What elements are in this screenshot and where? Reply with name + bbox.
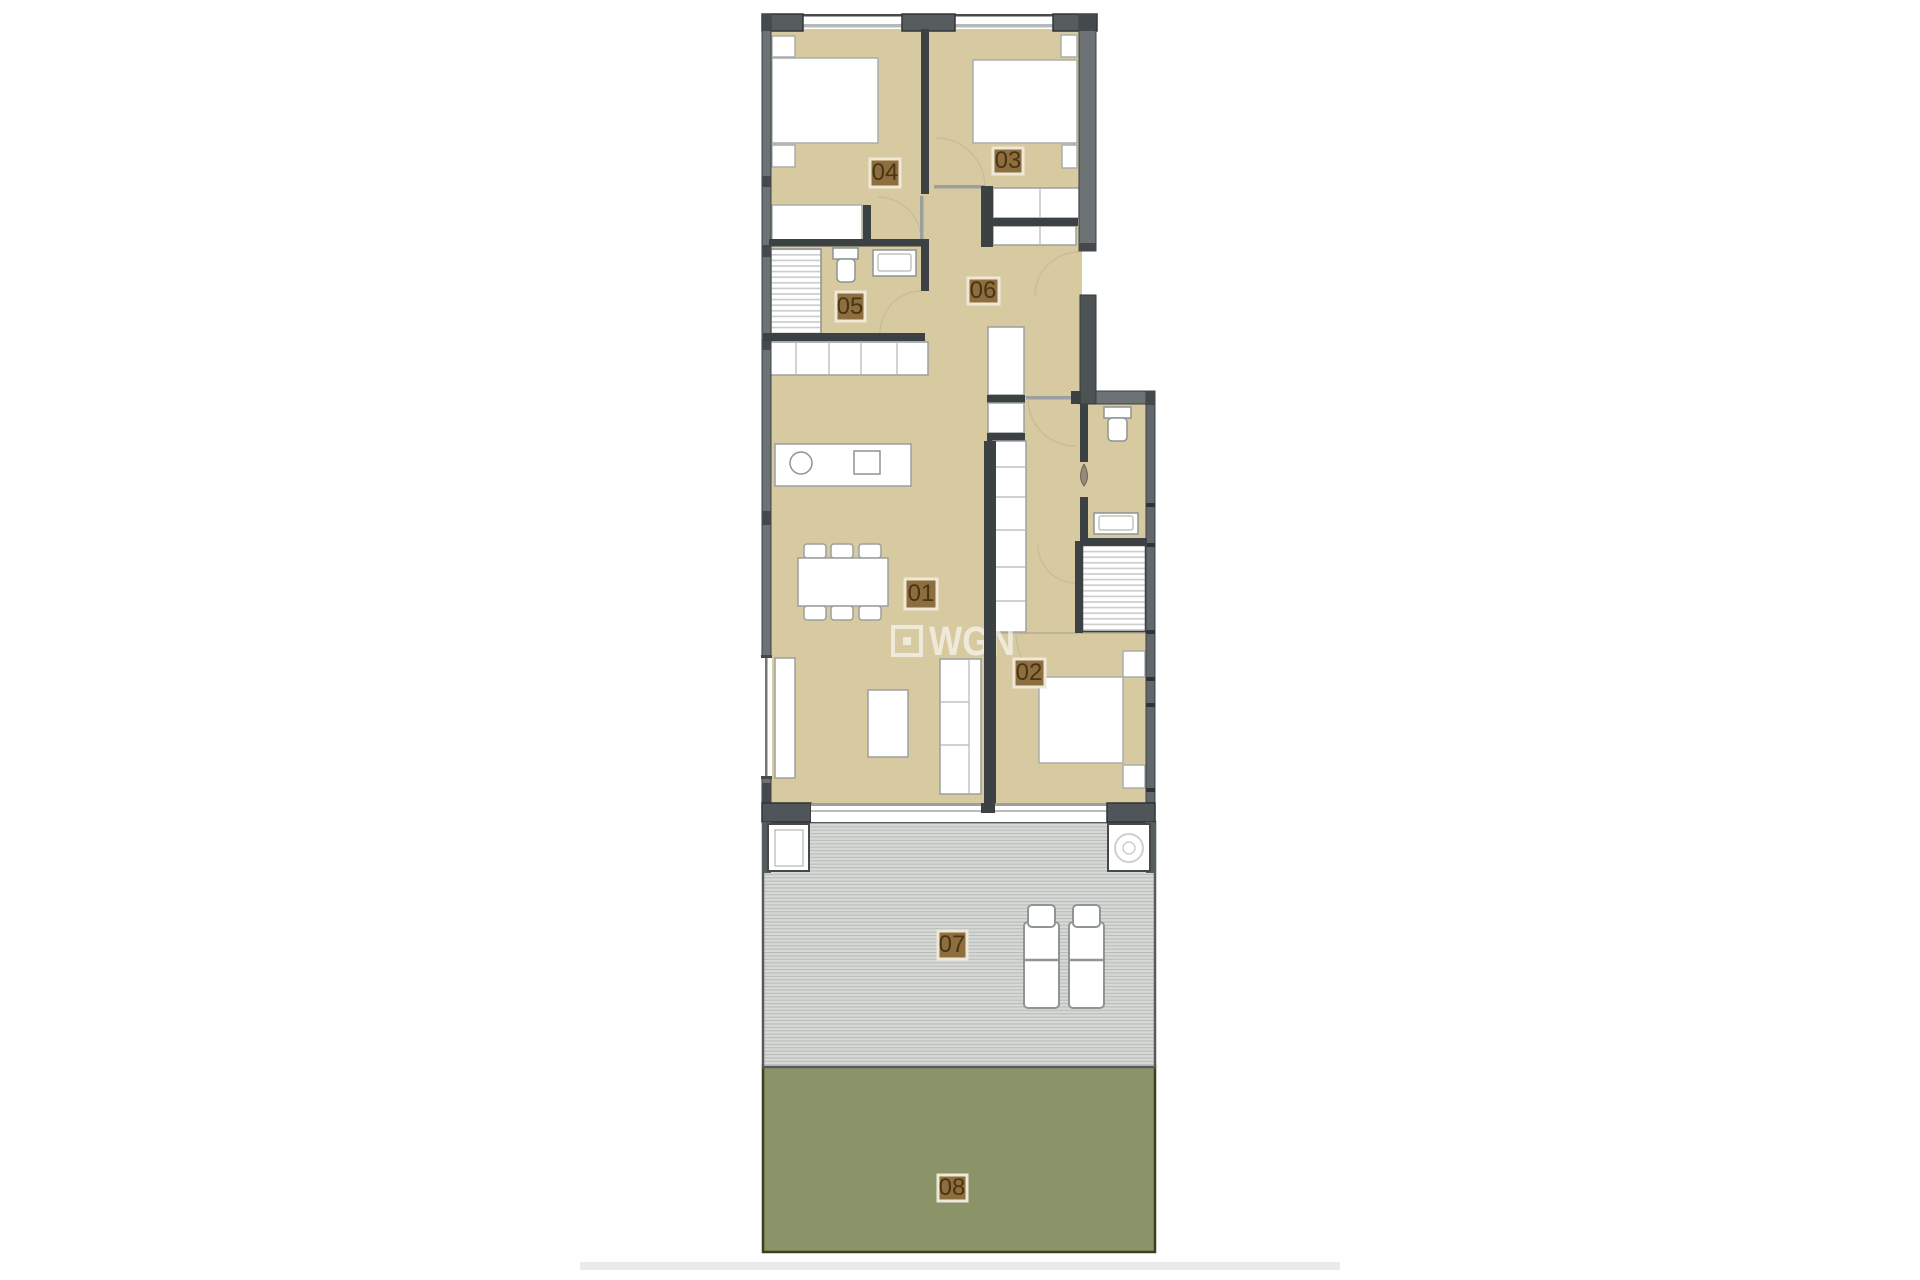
svg-text:05: 05 — [837, 293, 864, 320]
svg-text:08: 08 — [939, 1174, 966, 1201]
svg-text:04: 04 — [872, 159, 899, 186]
svg-text:03: 03 — [995, 147, 1022, 174]
svg-text:06: 06 — [970, 277, 997, 304]
svg-text:WGN: WGN — [929, 618, 1015, 664]
svg-text:02: 02 — [1016, 659, 1043, 686]
svg-text:01: 01 — [908, 580, 935, 607]
svg-text:07: 07 — [939, 931, 966, 958]
